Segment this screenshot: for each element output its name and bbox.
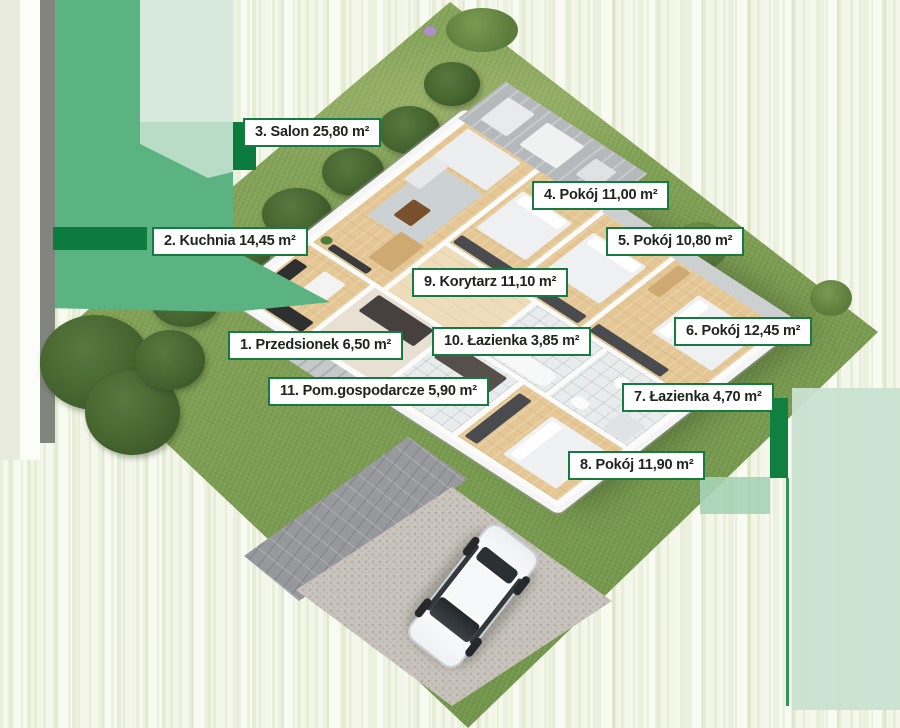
- toilet: [568, 395, 592, 412]
- room-label-kuchnia: 2. Kuchnia 14,45 m²: [152, 227, 308, 256]
- room-label-lazienka-7: 7. Łazienka 4,70 m²: [622, 383, 774, 412]
- right-darkgreen-line: [786, 478, 789, 706]
- room-label-salon: 3. Salon 25,80 m²: [243, 118, 381, 147]
- right-mint-panel: [792, 388, 900, 710]
- tree: [446, 8, 518, 52]
- shower: [602, 411, 646, 442]
- bush: [810, 280, 852, 316]
- room-label-przedsionek: 1. Przedsionek 6,50 m²: [228, 331, 403, 360]
- right-seafoam-block: [700, 477, 770, 514]
- hedge: [135, 330, 205, 390]
- flowers: [424, 26, 436, 36]
- room-label-pom-gospodarcze: 11. Pom.gospodarcze 5,90 m²: [268, 377, 489, 406]
- room-label-pokoj-8: 8. Pokój 11,90 m²: [568, 451, 705, 480]
- room-label-lazienka-10: 10. Łazienka 3,85 m²: [432, 327, 591, 356]
- overlay-mint-block: [140, 0, 233, 122]
- room-label-pokoj-6: 6. Pokój 12,45 m²: [674, 317, 812, 346]
- room-label-korytarz: 9. Korytarz 11,10 m²: [412, 268, 568, 297]
- hedge: [424, 62, 480, 106]
- floor-plan-scene: 1. Przedsionek 6,50 m² 2. Kuchnia 14,45 …: [0, 0, 900, 728]
- room-label-pokoj-5: 5. Pokój 10,80 m²: [606, 227, 744, 256]
- outdoor-sofa: [480, 97, 535, 136]
- left-white-strip: [20, 0, 40, 460]
- outdoor-sofa: [519, 122, 585, 168]
- room-label-pokoj-4: 4. Pokój 11,00 m²: [532, 181, 669, 210]
- overlay-darkgreen-band: [53, 227, 147, 250]
- left-pale-strip: [0, 0, 20, 460]
